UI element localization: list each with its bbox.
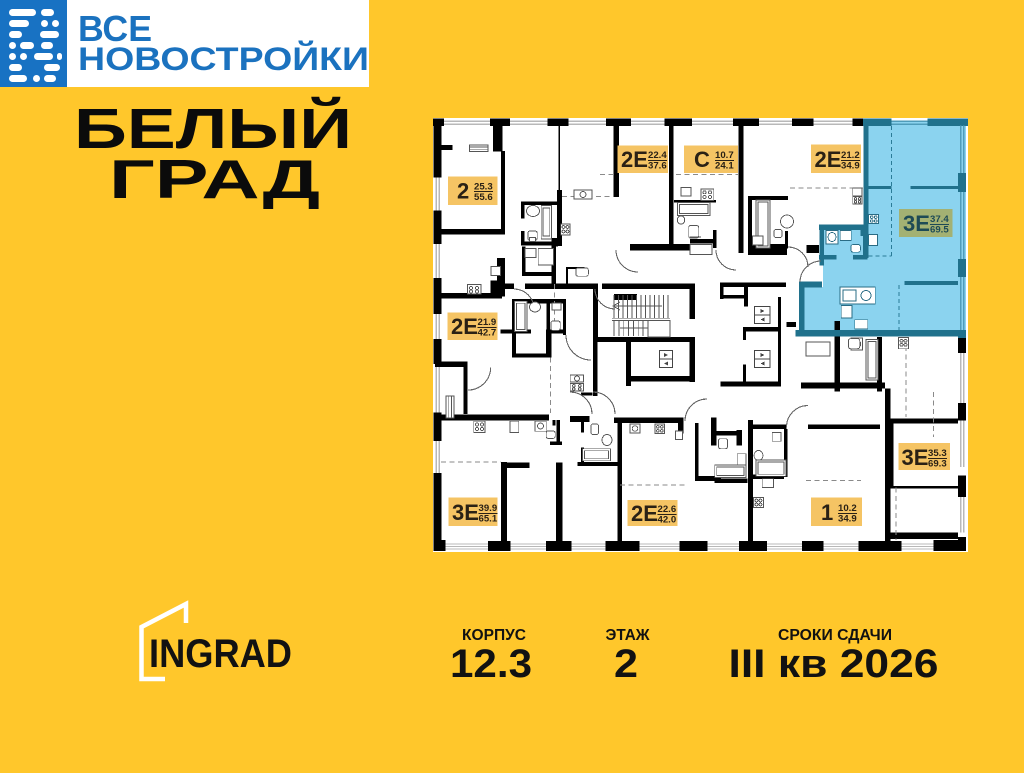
svg-text:22.4: 22.4 [648, 150, 667, 161]
svg-text:2Е: 2Е [815, 147, 842, 172]
svg-text:2: 2 [457, 179, 469, 204]
svg-text:42.7: 42.7 [478, 328, 497, 339]
svg-text:39.9: 39.9 [479, 503, 498, 514]
svg-text:2: 2 [614, 642, 638, 686]
svg-text:2Е: 2Е [451, 314, 478, 339]
svg-text:25.3: 25.3 [474, 182, 493, 193]
svg-text:35.3: 35.3 [928, 448, 947, 459]
svg-text:2Е: 2Е [631, 501, 658, 526]
svg-text:37.4: 37.4 [930, 214, 949, 225]
svg-text:3Е: 3Е [452, 500, 479, 525]
svg-text:3Е: 3Е [902, 445, 929, 470]
svg-text:42.0: 42.0 [658, 515, 677, 526]
svg-text:III кв 2026: III кв 2026 [729, 642, 939, 686]
svg-text:INGRAD: INGRAD [149, 632, 292, 676]
svg-text:С: С [694, 147, 710, 172]
svg-text:65.1: 65.1 [479, 514, 498, 525]
svg-text:21.2: 21.2 [841, 150, 860, 161]
svg-text:55.6: 55.6 [474, 192, 493, 203]
svg-text:34.9: 34.9 [841, 161, 860, 172]
svg-text:10.7: 10.7 [715, 150, 734, 161]
svg-text:22.6: 22.6 [658, 504, 677, 515]
svg-text:10.2: 10.2 [838, 503, 857, 514]
svg-text:21.9: 21.9 [478, 317, 497, 328]
svg-text:34.9: 34.9 [838, 514, 857, 525]
svg-text:3Е: 3Е [903, 211, 930, 236]
svg-text:69.3: 69.3 [928, 459, 947, 470]
svg-text:69.5: 69.5 [930, 225, 949, 236]
svg-text:2Е: 2Е [621, 147, 648, 172]
svg-text:37.6: 37.6 [648, 161, 667, 172]
svg-text:1: 1 [821, 500, 833, 525]
svg-text:24.1: 24.1 [715, 161, 734, 172]
svg-text:12.3: 12.3 [450, 642, 532, 686]
